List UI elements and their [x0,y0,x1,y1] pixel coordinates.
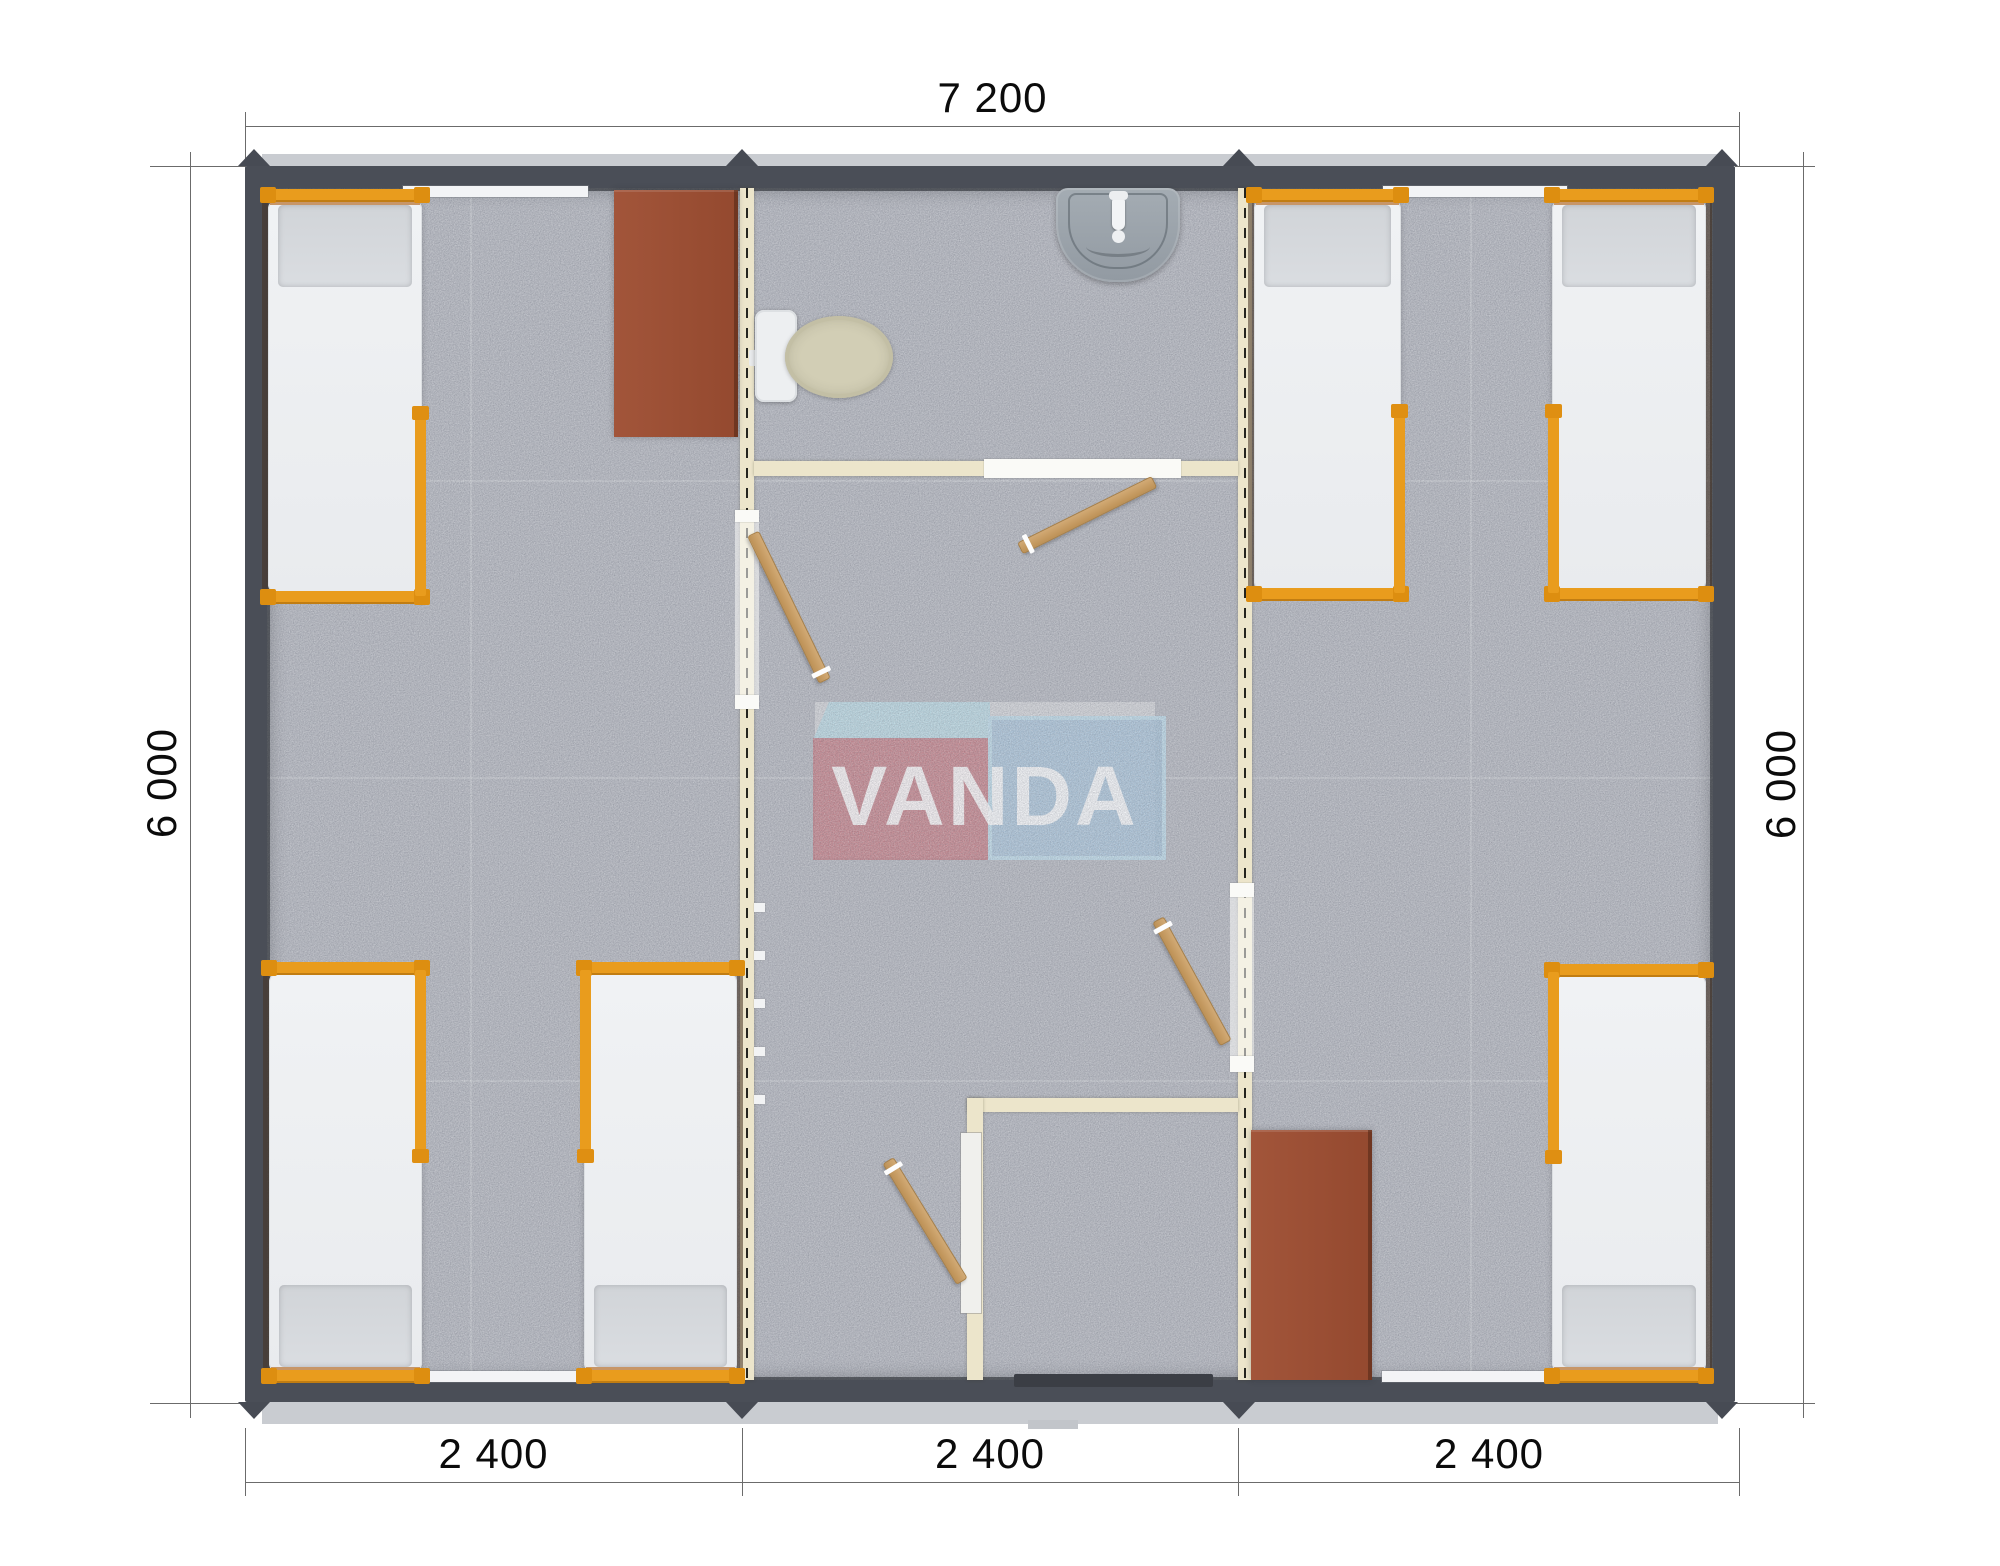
bed-shadow [1706,199,1712,591]
bed-frame-rail [580,1370,741,1383]
dimension-extension-line [1739,1428,1740,1496]
roof-eave-top [262,154,1718,166]
dimension-line-left [190,152,191,1418]
dimension-line-top [245,126,1740,127]
dimension-height-label-right: 6 000 [1759,704,1803,864]
dimension-segment-label: 2 400 [245,1432,742,1476]
dimension-line-bottom [245,1482,1740,1483]
shower-door [961,1133,981,1313]
bed-frame-rail [1250,588,1405,601]
wall-hook [754,1095,765,1104]
module-joint-marker [238,1402,270,1419]
door-jamb [1230,883,1254,897]
dimension-width-label: 7 200 [245,76,1740,120]
toilet [785,316,893,398]
bed-side-rail [1548,411,1559,593]
cabinet [1251,1130,1372,1380]
dimension-extension-line [150,166,246,167]
faucet-handle [1109,191,1128,200]
dimension-segment-label: 2 400 [1238,1432,1740,1476]
door-jamb [735,510,759,522]
wall-hook [754,903,765,912]
wall-centerline [1244,188,1246,1380]
window [1383,186,1567,197]
pillow [278,205,412,287]
pillow [1562,1285,1696,1367]
building-outline: VANDA [245,166,1735,1402]
module-joint-marker [1706,149,1738,166]
shower-enclosure-wall [967,1098,1238,1112]
dimension-segment-label: 2 400 [742,1432,1238,1476]
shower-threshold [1014,1374,1213,1387]
bed-shadow [1706,974,1712,1373]
wall-hook [754,999,765,1008]
bed-side-rail [1548,972,1559,1157]
wall-centerline [746,188,748,1380]
dimension-extension-line [742,1428,743,1496]
window [1382,1371,1567,1382]
door-jamb [1230,1056,1254,1072]
bed-side-rail [1394,411,1405,593]
dimension-height-label-left: 6 000 [140,703,184,863]
module-joint-marker [726,1402,758,1419]
bed-side-rail [415,413,426,596]
bed-frame-rail [1548,1370,1710,1383]
dimension-extension-line [1735,166,1815,167]
window [403,186,588,197]
bed-frame-rail [1548,588,1710,601]
module-joint-marker [1706,1402,1738,1419]
bed [1551,190,1707,600]
bed [267,190,423,603]
pillow [1562,205,1696,287]
bed-shadow [737,972,743,1373]
pillow [594,1285,727,1367]
bed [268,963,423,1382]
bed-side-rail [415,970,426,1156]
bed-frame-rail [264,591,426,604]
bathroom-door-opening [984,459,1181,478]
dimension-extension-line [245,1428,246,1496]
module-joint-marker [1223,1402,1255,1419]
bed-frame-rail [1548,964,1710,977]
bed [583,963,738,1382]
bed-frame-rail [264,189,426,202]
pillow [279,1285,412,1367]
dimension-extension-line [1739,112,1740,166]
bed-frame-rail [1548,189,1710,202]
bed-frame-rail [1250,189,1405,202]
dimension-line-right [1803,152,1804,1418]
bed-frame-rail [265,962,426,975]
module-joint-marker [726,149,758,166]
module-joint-marker [238,149,270,166]
wall-hook [754,951,765,960]
floor-plan-canvas: 7 200 2 400 2 400 2 400 6 000 6 000 [0,0,2000,1566]
sink-drain [1112,230,1125,243]
pillow [1264,205,1391,287]
door-jamb [735,695,759,709]
entry-step [1028,1420,1078,1429]
bed-frame-rail [265,1370,426,1383]
cabinet [614,190,738,437]
floor-texture [267,188,1713,1380]
roof-eave-bottom [262,1402,1718,1424]
dimension-extension-line [1238,1428,1239,1496]
right-room-door-opening [1230,883,1254,1072]
bed-frame-rail [580,962,741,975]
module-joint-marker [1223,149,1255,166]
bed [1253,190,1402,600]
bed [1551,965,1707,1382]
faucet-icon [1112,196,1125,230]
dimension-extension-line [1735,1403,1815,1404]
dimension-extension-line [150,1403,246,1404]
bed-side-rail [580,970,591,1156]
wall-hook [754,1047,765,1056]
